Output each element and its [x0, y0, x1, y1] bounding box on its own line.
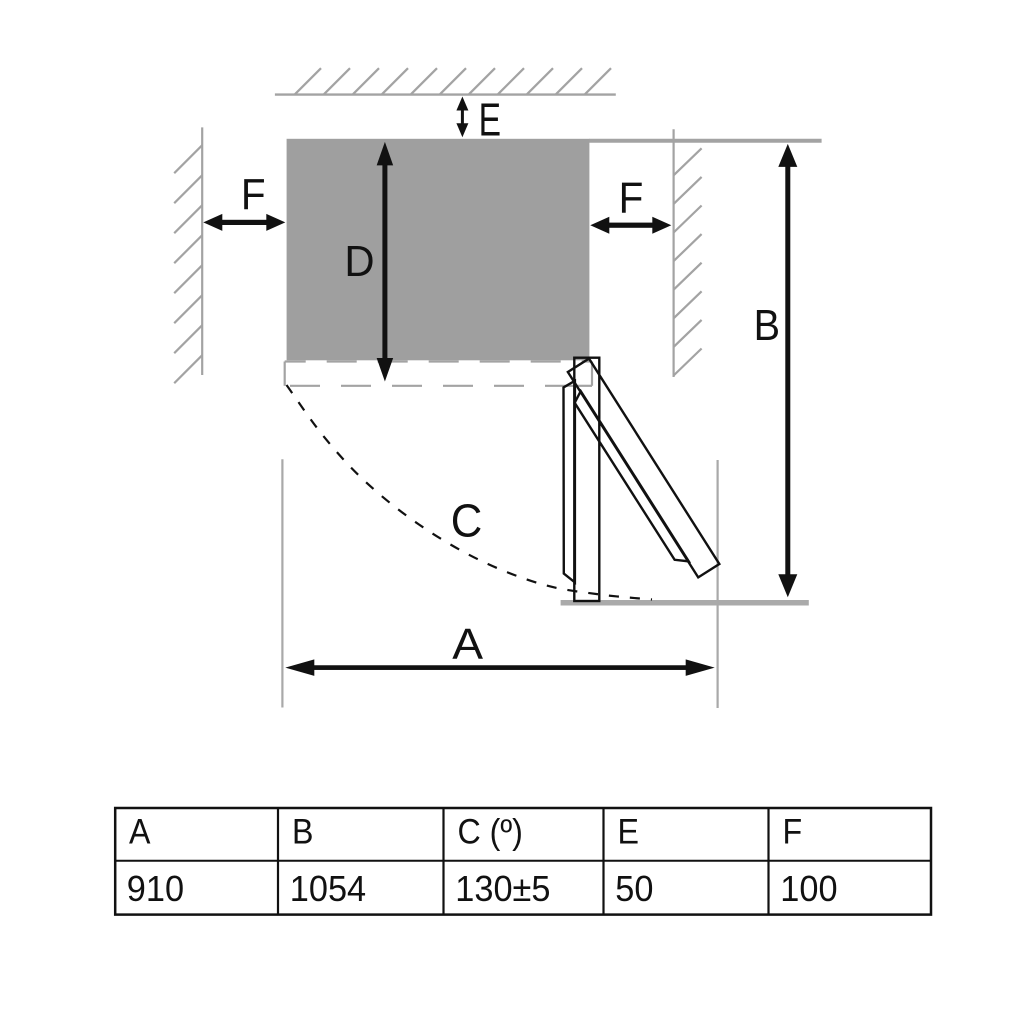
- svg-text:B: B: [292, 813, 313, 852]
- svg-text:C: C: [451, 494, 483, 546]
- svg-text:50: 50: [615, 868, 653, 909]
- svg-text:D: D: [344, 237, 374, 286]
- svg-text:E: E: [479, 94, 501, 145]
- svg-text:130±5: 130±5: [455, 868, 550, 909]
- svg-text:E: E: [618, 813, 639, 852]
- svg-text:C (º): C (º): [458, 813, 523, 852]
- svg-text:A: A: [452, 619, 483, 669]
- svg-text:F: F: [241, 169, 266, 218]
- svg-text:B: B: [754, 300, 780, 349]
- svg-text:F: F: [783, 813, 803, 852]
- svg-text:F: F: [619, 173, 644, 222]
- svg-text:910: 910: [127, 868, 184, 909]
- svg-text:A: A: [129, 813, 151, 852]
- svg-text:100: 100: [780, 868, 837, 909]
- svg-text:1054: 1054: [290, 868, 366, 909]
